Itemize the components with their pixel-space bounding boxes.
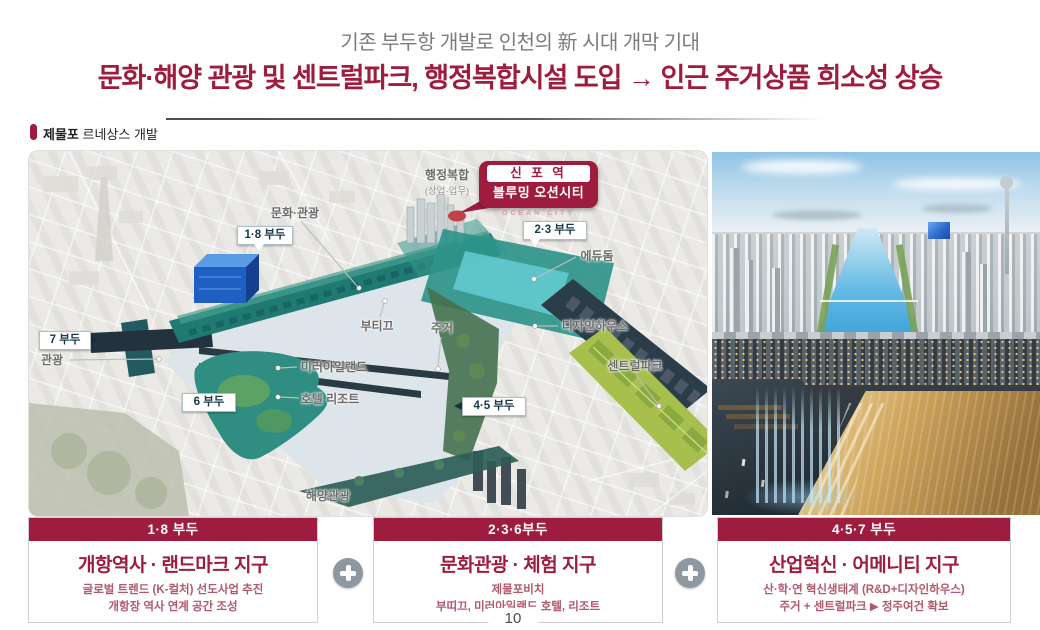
horizon-island — [772, 210, 862, 220]
elevated-road — [712, 332, 1040, 339]
section-accent-bar — [30, 124, 37, 140]
map-label-pier7: 7 부두 — [39, 331, 91, 350]
card-header: 1·8 부두 — [29, 518, 317, 541]
tv-tower-silhouette — [95, 177, 113, 261]
card-lines: 산·학·연 혁신생태계 (R&D+디자인하우스) 주거 + 센트럴파크 ▶ 정주… — [718, 582, 1010, 615]
blue-cube-building — [928, 222, 950, 239]
section-divider-line — [166, 118, 824, 120]
map-label-pier6: 6 부두 — [182, 393, 236, 412]
sinpo-station-badge: 신 포 역 블루밍 오션시티 — [479, 161, 598, 208]
landmark-cube — [194, 254, 259, 303]
map-label-centralpark: 센트럴파크 — [602, 357, 668, 374]
plus-icon — [675, 558, 705, 588]
section-title: 제물포 르네상스 개발 — [43, 124, 158, 143]
station-name: 신 포 역 — [487, 165, 590, 182]
ocean-city-rendering — [712, 152, 1040, 515]
map-label-boutique: 부티끄 — [354, 317, 400, 334]
page-number: 10 — [488, 608, 538, 629]
cloud — [742, 160, 862, 174]
card-lines: 글로벌 트렌드 (K-컬처) 선도사업 추진 개항장 역사 연계 공간 조성 — [29, 582, 317, 615]
card-header: 2·3·6부두 — [374, 518, 662, 541]
night-harbor-plaza — [712, 339, 1040, 515]
card-title: 산업혁신 · 어메니티 지구 — [718, 550, 1010, 577]
map-label-admin-complex: 행정복합 (상업·업무) — [407, 166, 487, 197]
card-header: 4·5·7 부두 — [718, 518, 1010, 541]
slide-subtitle: 기존 부두항 개발로 인천의 新 시대 개막 기대 — [0, 26, 1040, 55]
map-label-edudome: 에듀돔 — [572, 247, 622, 264]
map-label-designhouse: 디자인하우스 — [556, 317, 634, 334]
station-dot — [448, 211, 466, 222]
map-label-residential: 주거 — [424, 319, 460, 336]
card-title: 문화관광 · 체험 지구 — [374, 550, 662, 577]
map-label-mirror-island: 미러아일랜드 — [296, 358, 372, 375]
ocean-city-caption: OCEAN CITY — [479, 210, 598, 217]
card-title: 개항역사 · 랜드마크 지구 — [29, 550, 317, 577]
plus-icon — [333, 558, 363, 588]
map-label-hotel-resort: 호텔 리조트 — [298, 390, 362, 407]
map-label-pier18: 1·8 부두 — [237, 226, 293, 245]
horizon-island — [922, 204, 992, 213]
slide-headline: 문화·해양 관광 및 센트럴파크, 행정복합시설 도입 → 인근 주거상품 희소… — [0, 56, 1040, 95]
map-label-pier45: 4·5 부두 — [462, 397, 526, 416]
observation-tower — [1005, 182, 1009, 274]
district-card-pier18: 1·8 부두 개항역사 · 랜드마크 지구 글로벌 트렌드 (K-컬처) 선도사… — [28, 517, 318, 623]
map-label-pier23: 2·3 부두 — [523, 221, 587, 240]
map-label-culture-tourism: 문화·관광 — [262, 204, 328, 221]
project-name: 블루밍 오션시티 — [479, 183, 598, 203]
district-card-pier457: 4·5·7 부두 산업혁신 · 어메니티 지구 산·학·연 혁신생태계 (R&D… — [717, 517, 1011, 623]
map-label-marine-tourism: 해양관광 — [300, 487, 356, 504]
map-label-tourism: 관광 — [34, 351, 70, 368]
presentation-slide: { "header": { "subtitle": "기존 부두항 개발로 인천… — [0, 0, 1040, 630]
